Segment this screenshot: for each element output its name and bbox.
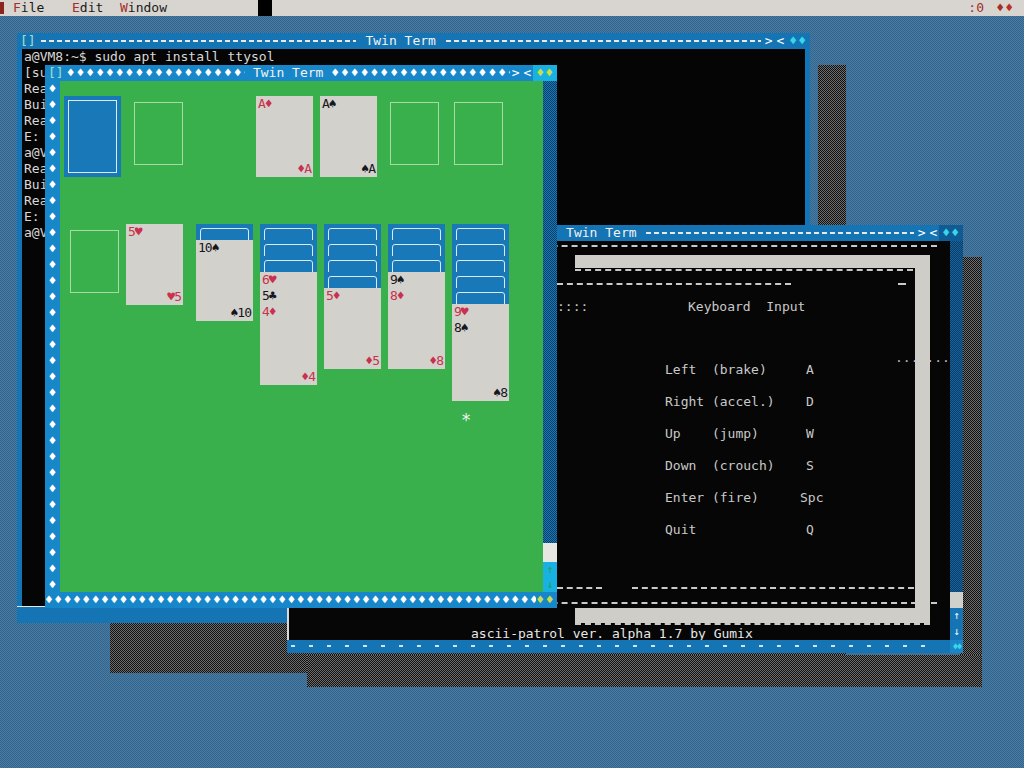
card-rank-suit: 6♥ bbox=[262, 272, 276, 288]
card-rank-suit: ♠10 bbox=[231, 305, 251, 321]
menu-file[interactable]: File bbox=[13, 0, 44, 16]
menu-window[interactable]: Window bbox=[120, 0, 167, 16]
tableau-card[interactable]: 5♦ ♦5 bbox=[324, 288, 381, 369]
ascii-bottom-border[interactable] bbox=[287, 640, 963, 653]
menu-key-left: A bbox=[806, 362, 814, 378]
maximize-icon[interactable]: > bbox=[763, 33, 775, 49]
close-diamonds-icon[interactable]: ♦♦ bbox=[939, 225, 963, 241]
solitaire-scrollbar-thumb[interactable] bbox=[543, 543, 557, 562]
game-frame-top bbox=[575, 255, 930, 268]
card-rank-suit: 8♠ bbox=[454, 320, 468, 336]
maximize-icon[interactable]: > bbox=[916, 225, 928, 241]
menu-edit[interactable]: Edit bbox=[72, 0, 103, 16]
game-dashed-line bbox=[632, 587, 914, 589]
game-dashed-line bbox=[575, 269, 913, 271]
restore-icon[interactable]: < bbox=[522, 65, 534, 81]
solitaire-bottom-border[interactable]: ♦♦♦♦♦♦♦♦♦♦♦♦♦♦♦♦♦♦♦♦♦♦♦♦♦♦♦♦♦♦♦♦♦♦♦♦♦♦♦♦… bbox=[45, 592, 557, 608]
game-status-line: ascii-patrol ver. alpha 1.7 by Gumix bbox=[471, 626, 753, 640]
card-rank-suit: ♦A bbox=[297, 161, 311, 177]
menu-key-enter: Spc bbox=[800, 490, 823, 506]
text-cursor-block bbox=[258, 0, 272, 16]
stock-pile-card-back[interactable] bbox=[64, 96, 121, 177]
terminal-line: a@V bbox=[24, 225, 47, 241]
window-menu-icon[interactable]: [] bbox=[45, 65, 67, 81]
menu-key-up: W bbox=[806, 426, 814, 442]
solitaire-titlebar[interactable]: [] ♦♦♦♦♦♦♦♦♦♦♦♦♦♦♦♦♦♦♦♦♦♦♦♦♦♦♦♦♦♦♦♦♦♦ Tw… bbox=[45, 65, 557, 81]
ascii-window-title: Twin Term bbox=[558, 225, 644, 241]
tableau-card[interactable]: 4♦ ♦4 bbox=[260, 304, 317, 385]
card-rank-suit: 9♥ bbox=[454, 304, 468, 320]
close-diamonds-icon[interactable]: ♦♦ bbox=[786, 33, 810, 49]
game-dashed-line bbox=[575, 623, 930, 625]
card-rank-suit: 5♦ bbox=[326, 288, 340, 304]
game-frame-right bbox=[915, 255, 930, 623]
scroll-up-icon[interactable]: ↑ bbox=[543, 562, 557, 577]
ascii-scrollbar-thumb[interactable] bbox=[950, 592, 963, 608]
menu-row-quit[interactable]: Quit bbox=[665, 522, 696, 538]
solitaire-window-title: Twin Term bbox=[245, 65, 331, 81]
game-dashed-line bbox=[557, 283, 791, 285]
maximize-icon[interactable]: > bbox=[510, 65, 522, 81]
border-diamond-pattern: ♦♦♦♦♦♦♦♦♦♦♦♦♦♦♦♦♦♦♦♦♦♦♦♦♦♦♦♦♦♦♦♦♦♦♦♦♦♦♦♦… bbox=[45, 592, 536, 608]
terminal-line: Rea bbox=[24, 193, 47, 209]
terminal-line: a@V bbox=[24, 145, 47, 161]
card-rank-suit: A♦ bbox=[258, 96, 272, 112]
ascii-window-shadow-bottom bbox=[307, 655, 982, 687]
terminal-line: Rea bbox=[24, 161, 47, 177]
ascii-resize-corner-icon[interactable]: ♦♦ bbox=[950, 640, 963, 653]
solitaire-left-border[interactable]: ♦♦♦♦♦♦♦♦♦♦♦♦♦♦♦♦♦♦♦♦♦♦♦♦♦♦♦♦♦♦♦♦♦ bbox=[45, 81, 60, 592]
card-rank-suit: 5♣ bbox=[262, 288, 276, 304]
tableau-empty-slot[interactable] bbox=[70, 230, 119, 293]
card-rank-suit: ♠A bbox=[361, 161, 375, 177]
card-rank-suit: ♦4 bbox=[301, 369, 315, 385]
titlebar-drag-area[interactable] bbox=[644, 225, 915, 241]
game-dotted-column: .............. bbox=[895, 349, 903, 367]
card-rank-suit: ♥5 bbox=[167, 289, 181, 305]
foundation-card-ace-diamonds[interactable]: A♦ ♦A bbox=[256, 96, 313, 177]
menu-row-left[interactable]: Left (brake) bbox=[665, 362, 767, 378]
titlebar-drag-area[interactable] bbox=[39, 33, 358, 49]
menu-key-down: S bbox=[806, 458, 814, 474]
menu-bar: File Edit Window :0 ♦♦ bbox=[0, 0, 1024, 16]
card-rank-suit: ♦8 bbox=[429, 353, 443, 369]
card-rank-suit: 4♦ bbox=[262, 304, 276, 320]
resize-corner-icon[interactable]: ♦♦ bbox=[536, 592, 557, 608]
scroll-up-icon[interactable]: ↑ bbox=[950, 608, 963, 624]
card-rank-suit: 5♥ bbox=[128, 224, 142, 240]
card-rank-suit: ♦5 bbox=[365, 353, 379, 369]
scroll-down-icon[interactable]: ↓ bbox=[543, 577, 557, 592]
card-rank-suit: 9♠ bbox=[390, 272, 404, 288]
terminal-line: E: bbox=[24, 209, 40, 225]
menu-row-enter[interactable]: Enter (fire) bbox=[665, 490, 759, 506]
menu-key-quit: Q bbox=[806, 522, 814, 538]
solitaire-scrollbar[interactable]: ↑ ↓ bbox=[543, 81, 557, 592]
twin-desktop: [] Twin Term > < ♦♦ a@VM8:~$ sudo apt in… bbox=[0, 0, 1024, 768]
titlebar-diamond-pattern[interactable]: ♦♦♦♦♦♦♦♦♦♦♦♦♦♦♦♦♦♦♦♦ bbox=[331, 65, 509, 81]
foundation-empty-slot[interactable] bbox=[390, 102, 439, 165]
foundation-empty-slot[interactable] bbox=[454, 102, 503, 165]
menu-row-up[interactable]: Up (jump) bbox=[665, 426, 759, 442]
scroll-down-icon[interactable]: ↓ bbox=[950, 624, 963, 640]
titlebar-drag-area[interactable] bbox=[444, 33, 763, 49]
display-id-label: :0 bbox=[968, 0, 984, 16]
solitaire-window: [] ♦♦♦♦♦♦♦♦♦♦♦♦♦♦♦♦♦♦♦♦♦♦♦♦♦♦♦♦♦♦♦♦♦♦ Tw… bbox=[45, 65, 557, 608]
ascii-scrollbar-arrows[interactable]: ↑ ↓ bbox=[950, 608, 963, 640]
close-diamonds-icon[interactable]: ♦♦ bbox=[533, 65, 557, 81]
card-rank-suit: ♠8 bbox=[493, 385, 507, 401]
solitaire-scrollbar-arrows[interactable]: ↑ ↓ bbox=[543, 562, 557, 592]
game-dashed-line bbox=[898, 283, 906, 285]
foundation-card-ace-spades[interactable]: A♠ ♠A bbox=[320, 96, 377, 177]
restore-icon[interactable]: < bbox=[928, 225, 940, 241]
tableau-card[interactable]: 5♥ ♥5 bbox=[126, 224, 183, 305]
mouse-pointer-icon: * bbox=[461, 412, 471, 428]
menu-key-right: D bbox=[806, 394, 814, 410]
terminal-line: Bui bbox=[24, 97, 47, 113]
terminal-line: [su bbox=[24, 65, 47, 81]
tableau-card[interactable]: 8♦ ♦8 bbox=[388, 288, 445, 369]
menubar-diamonds-icon[interactable]: ♦♦ bbox=[996, 0, 1014, 16]
waste-pile-empty-slot[interactable] bbox=[134, 102, 183, 165]
game-heading: Keyboard Input bbox=[688, 299, 805, 315]
game-left-marks: :::: bbox=[557, 299, 588, 315]
titlebar-diamond-pattern[interactable]: ♦♦♦♦♦♦♦♦♦♦♦♦♦♦♦♦♦♦♦♦♦♦♦♦♦♦♦♦♦♦♦♦♦♦ bbox=[67, 65, 245, 81]
restore-icon[interactable]: < bbox=[775, 33, 787, 49]
terminal-window-title: Twin Term bbox=[358, 33, 444, 49]
card-rank-suit: 8♦ bbox=[390, 288, 404, 304]
tableau-card[interactable]: 10♠ ♠10 bbox=[196, 240, 253, 321]
terminal-line: Rea bbox=[24, 81, 47, 97]
terminal-prompt-line: a@VM8:~$ sudo apt install ttysol bbox=[24, 49, 274, 65]
terminal-line: Bui bbox=[24, 177, 47, 193]
menubar-corner-mark[interactable] bbox=[0, 2, 4, 14]
menu-row-right[interactable]: Right (accel.) bbox=[665, 394, 775, 410]
tableau-card[interactable]: 8♠ ♠8 bbox=[452, 320, 509, 401]
card-rank-suit: 10♠ bbox=[198, 240, 218, 256]
game-dashed-line bbox=[557, 587, 602, 589]
solitaire-felt[interactable]: A♦ ♦A A♠ ♠A 5♥ ♥5 10♠ ♠10 bbox=[60, 81, 543, 592]
terminal-line: E: bbox=[24, 129, 40, 145]
menu-row-down[interactable]: Down (crouch) bbox=[665, 458, 775, 474]
game-frame-bottom bbox=[575, 608, 930, 623]
ascii-scrollbar[interactable]: ↑ ↓ bbox=[950, 241, 963, 640]
ascii-window-shadow-right bbox=[960, 257, 982, 687]
terminal-titlebar[interactable]: [] Twin Term > < ♦♦ bbox=[17, 33, 810, 49]
window-menu-icon[interactable]: [] bbox=[17, 33, 39, 49]
card-rank-suit: A♠ bbox=[322, 96, 336, 112]
terminal-line: Rea bbox=[24, 113, 47, 129]
